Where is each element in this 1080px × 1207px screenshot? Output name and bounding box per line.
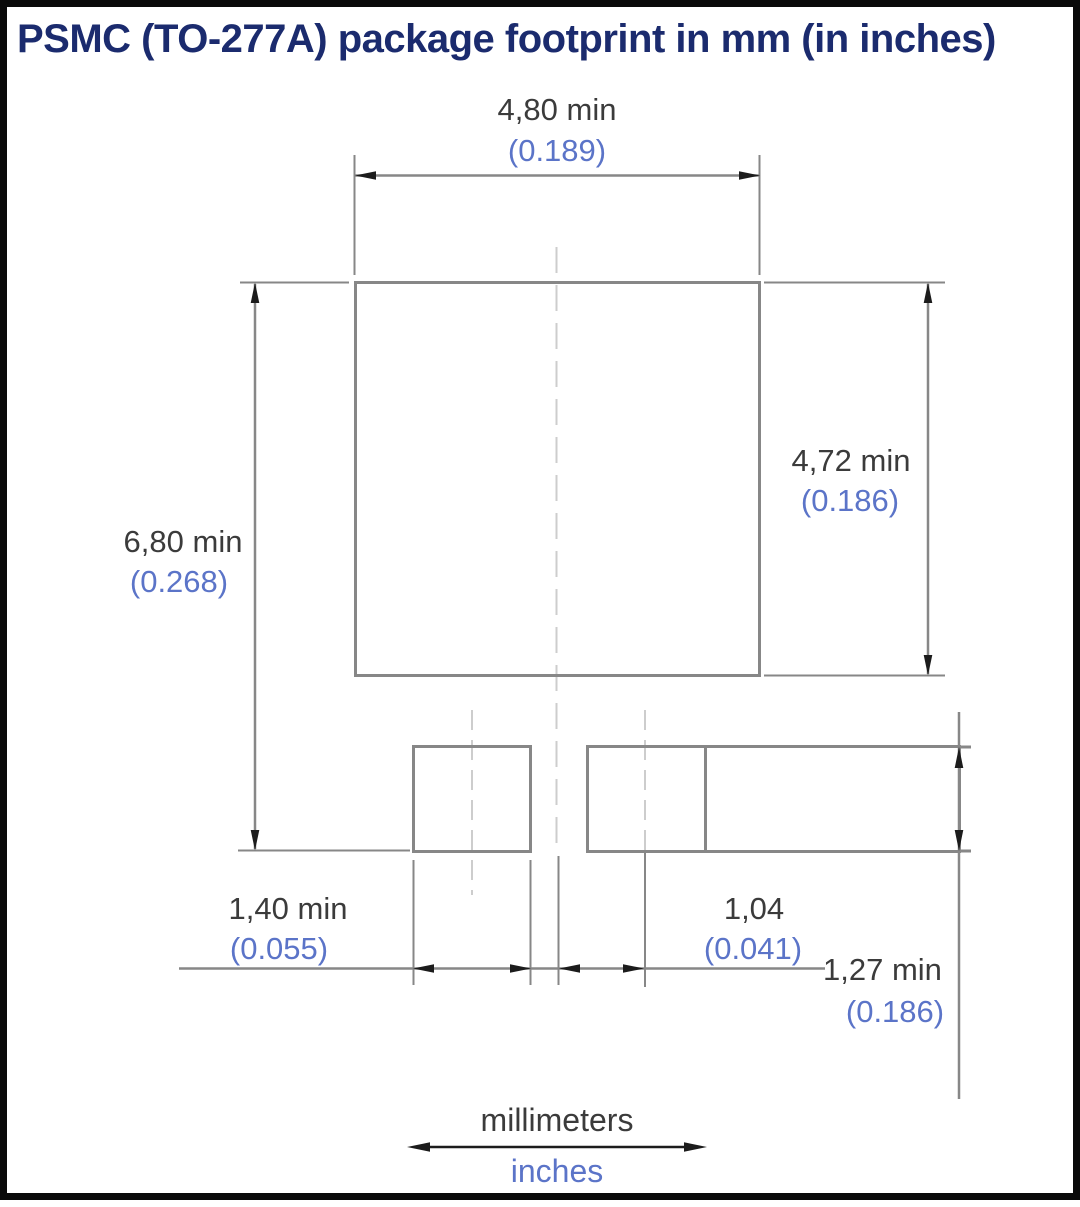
dim-overall-height-lines — [238, 283, 410, 851]
dim-pad-height-inch: (0.186) — [846, 996, 944, 1027]
right-pad-outline — [588, 747, 960, 852]
dim-body-height-mm: 4,72 min — [792, 445, 911, 476]
dim-overall-height-inch: (0.268) — [130, 566, 228, 597]
legend-units-arrow — [407, 1142, 707, 1151]
dim-pad-pitch-mm: 1,04 — [724, 893, 784, 924]
dim-body-height-inch: (0.186) — [801, 485, 899, 516]
dim-pad-height-lines — [955, 712, 964, 1099]
dim-pad-width-mm: 1,40 min — [229, 893, 348, 924]
dim-body-width-inch: (0.189) — [508, 135, 606, 166]
legend-inches-label: inches — [511, 1155, 604, 1187]
dim-overall-height-mm: 6,80 min — [124, 526, 243, 557]
legend-millimeters-label: millimeters — [481, 1104, 634, 1136]
dim-pad-pitch-inch: (0.041) — [704, 933, 802, 964]
dim-pad-width-inch: (0.055) — [230, 933, 328, 964]
dim-pad-height-mm: 1,27 min — [823, 954, 942, 985]
diagram-frame: PSMC (TO-277A) package footprint in mm (… — [0, 0, 1080, 1200]
dim-body-width-mm: 4,80 min — [498, 94, 617, 125]
dim-body-height-lines — [764, 283, 945, 676]
